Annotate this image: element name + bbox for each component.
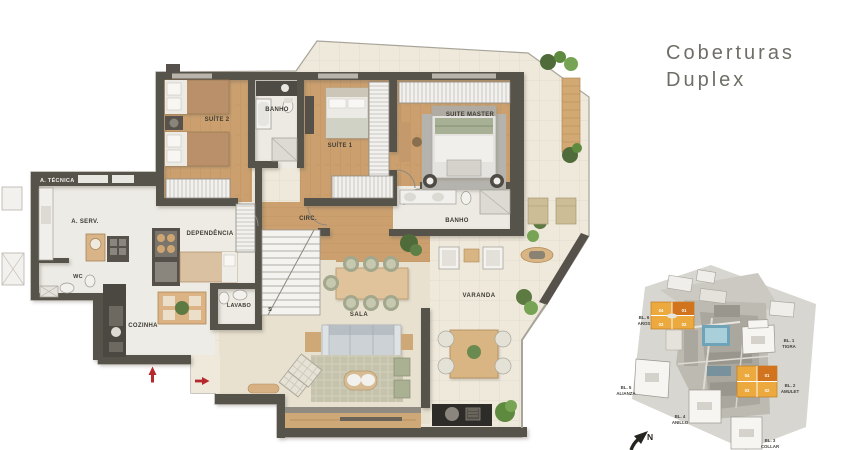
svg-text:N: N bbox=[647, 432, 653, 442]
svg-text:SUÍTE 1: SUÍTE 1 bbox=[328, 141, 353, 149]
svg-text:WC: WC bbox=[73, 274, 83, 280]
svg-text:BANHO: BANHO bbox=[265, 107, 289, 113]
svg-text:CIRC.: CIRC. bbox=[299, 216, 317, 222]
svg-text:SALA: SALA bbox=[350, 312, 369, 318]
svg-text:TIGRA: TIGRA bbox=[782, 344, 796, 349]
svg-text:VARANDA: VARANDA bbox=[462, 293, 495, 299]
svg-text:DEPENDÊNCIA: DEPENDÊNCIA bbox=[187, 229, 234, 237]
svg-text:BANHO: BANHO bbox=[445, 218, 469, 224]
svg-text:01: 01 bbox=[765, 373, 770, 378]
svg-text:03: 03 bbox=[745, 388, 750, 393]
svg-text:BL. 6: BL. 6 bbox=[639, 315, 650, 320]
svg-text:SUÍTE 2: SUÍTE 2 bbox=[205, 115, 230, 123]
svg-text:Duplex: Duplex bbox=[666, 69, 746, 91]
svg-text:A. SERV.: A. SERV. bbox=[71, 219, 98, 225]
svg-text:BL. 3: BL. 3 bbox=[765, 438, 776, 443]
svg-text:01: 01 bbox=[682, 308, 687, 313]
svg-text:03: 03 bbox=[659, 322, 664, 327]
svg-text:LAVABO: LAVABO bbox=[227, 303, 252, 309]
svg-text:COLLAR: COLLAR bbox=[761, 444, 780, 449]
svg-text:BL. 4: BL. 4 bbox=[675, 414, 686, 419]
svg-text:04: 04 bbox=[659, 308, 664, 313]
svg-text:SUITE MASTER: SUITE MASTER bbox=[446, 112, 495, 118]
svg-text:AROS: AROS bbox=[638, 321, 651, 326]
svg-text:COZINHA: COZINHA bbox=[128, 323, 158, 329]
svg-text:S: S bbox=[268, 307, 272, 313]
svg-text:A. TÉCNICA: A. TÉCNICA bbox=[40, 176, 74, 184]
svg-text:BL. 5: BL. 5 bbox=[621, 385, 632, 390]
svg-text:04: 04 bbox=[745, 373, 750, 378]
svg-text:AMULET: AMULET bbox=[781, 389, 800, 394]
svg-text:Coberturas: Coberturas bbox=[666, 42, 795, 64]
svg-text:02: 02 bbox=[765, 388, 770, 393]
svg-text:02: 02 bbox=[682, 322, 687, 327]
svg-text:ALIANZA: ALIANZA bbox=[616, 391, 636, 396]
svg-text:BL. 1: BL. 1 bbox=[784, 338, 795, 343]
svg-text:BL. 2: BL. 2 bbox=[785, 383, 796, 388]
svg-text:ANILLO: ANILLO bbox=[672, 420, 689, 425]
